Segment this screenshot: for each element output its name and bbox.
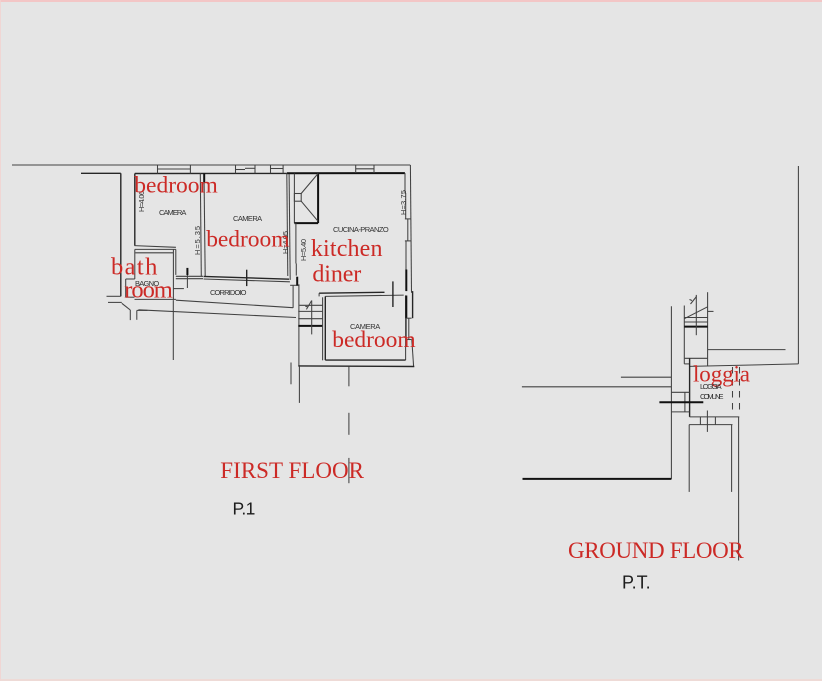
svg-text:P.T.: P.T. <box>622 572 651 592</box>
svg-text:room: room <box>124 276 173 303</box>
svg-text:CUCINA-PRANZO: CUCINA-PRANZO <box>333 225 389 234</box>
svg-text:H=3.75: H=3.75 <box>399 190 408 215</box>
svg-text:FIRST FLOOR: FIRST FLOOR <box>220 458 364 483</box>
svg-text:diner: diner <box>312 262 361 288</box>
svg-text:LOGGIA: LOGGIA <box>700 382 722 391</box>
svg-text:H=5.35: H=5.35 <box>193 226 202 255</box>
svg-text:bedroom: bedroom <box>332 327 416 353</box>
svg-text:CAMERA: CAMERA <box>159 208 186 217</box>
svg-text:COMUNE: COMUNE <box>700 392 724 401</box>
svg-text:bedroom: bedroom <box>206 227 289 253</box>
svg-text:H=5.40: H=5.40 <box>299 239 308 261</box>
svg-text:CORRIDOIO: CORRIDOIO <box>210 288 247 297</box>
svg-text:GROUND FLOOR: GROUND FLOOR <box>568 538 744 563</box>
svg-text:bedroom: bedroom <box>134 172 218 198</box>
svg-text:P.1: P.1 <box>233 499 255 519</box>
svg-text:kitchen: kitchen <box>311 236 383 262</box>
svg-text:CAMERA: CAMERA <box>233 214 262 223</box>
